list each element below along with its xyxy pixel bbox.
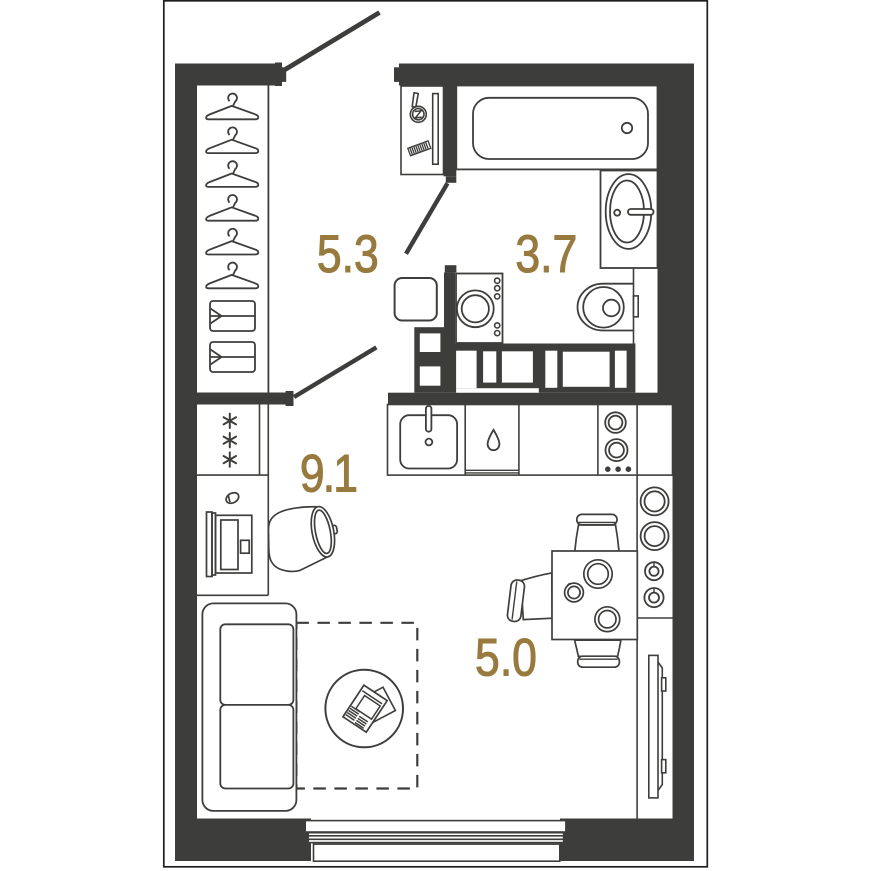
svg-text:5.3: 5.3 <box>317 226 379 284</box>
svg-text:5.0: 5.0 <box>475 629 537 687</box>
svg-text:3.7: 3.7 <box>515 226 577 284</box>
svg-text:9.1: 9.1 <box>300 445 356 503</box>
